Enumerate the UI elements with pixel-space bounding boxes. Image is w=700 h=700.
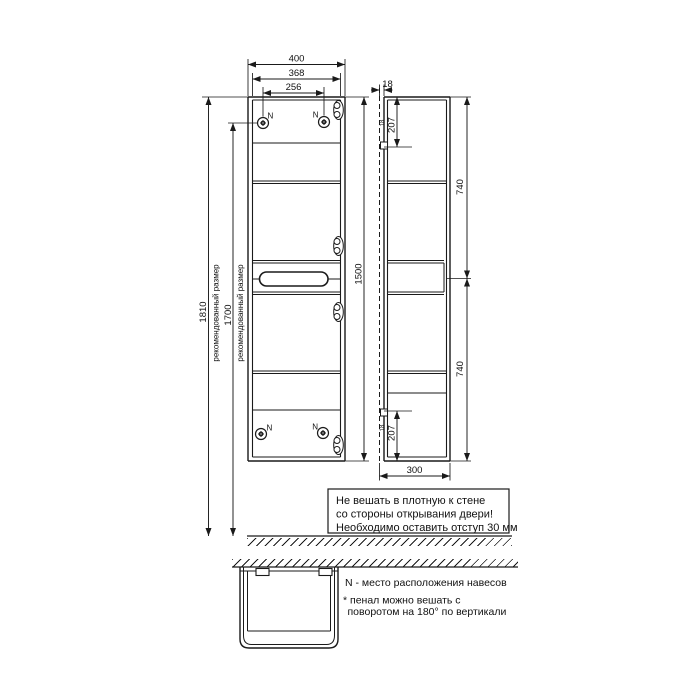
hinge-icon [334, 101, 344, 120]
dim-width-inner-label: 368 [289, 68, 305, 79]
hanger-mount-icon [319, 117, 330, 128]
dim-depth-label: 300 [407, 465, 423, 476]
dim-overall-note: рекомендованный размер [212, 264, 221, 362]
dim-height-label: 1500 [354, 263, 365, 284]
note-rotate-1: * пенал можно вешать с [343, 595, 461, 607]
plan-view [240, 567, 338, 648]
hanger-bracket [381, 142, 388, 149]
cabinet-drawing: Не вешать в плотную к стене со стороны о… [0, 0, 700, 700]
dimension-lines [209, 65, 468, 537]
hinge-icon [334, 237, 344, 256]
hanger-mount-icon [256, 429, 267, 440]
warning-line-2: со стороны открывания двери! [336, 509, 493, 521]
dim-hanger-bottom-label: 207 [387, 425, 398, 441]
hanger-n-label: N [312, 423, 318, 432]
hanger-n-label: N [313, 111, 319, 120]
note-hangers: N - место расположения навесов [345, 577, 507, 589]
door-handle [260, 272, 329, 286]
side-shelf-lines [388, 181, 447, 393]
dim-hanger-height-note: рекомендованный размер [236, 264, 245, 362]
hinge-icon [334, 303, 344, 322]
hinge-icon [334, 436, 344, 455]
dim-hanger-height-label: 1700 [223, 304, 234, 325]
dim-overall-label: 1810 [198, 301, 209, 322]
dim-width-label: 400 [289, 54, 305, 65]
dim-rail-offset-label: 18 [382, 79, 393, 90]
floor-hatching [247, 538, 512, 546]
hanger-mount-icon [318, 428, 329, 439]
hanger-bracket [256, 569, 269, 576]
note-rotate-2: поворотом на 180° по вертикали [348, 606, 507, 618]
hanger-n-label: N [268, 112, 274, 121]
warning-line-3: Необходимо оставить отступ 30 мм [336, 522, 518, 534]
front-view [248, 97, 345, 461]
technical-drawing-canvas: Не вешать в плотную к стене со стороны о… [0, 0, 700, 700]
dim-upper-section-label: 740 [455, 179, 466, 195]
dim-lower-section-label: 740 [455, 361, 466, 377]
wall-hatching [232, 559, 518, 567]
hanger-bracket [319, 569, 332, 576]
dim-hanger-top-inset-label: 18 [380, 119, 386, 126]
warning-line-1: Не вешать в плотную к стене [336, 495, 485, 507]
dim-hanger-span-label: 256 [286, 82, 302, 93]
dim-hanger-top-label: 207 [387, 117, 398, 133]
side-view [380, 88, 451, 463]
hanger-n-label: N [267, 424, 273, 433]
dim-hanger-bottom-inset-label: 18 [380, 424, 386, 431]
hanger-bracket [381, 409, 388, 416]
